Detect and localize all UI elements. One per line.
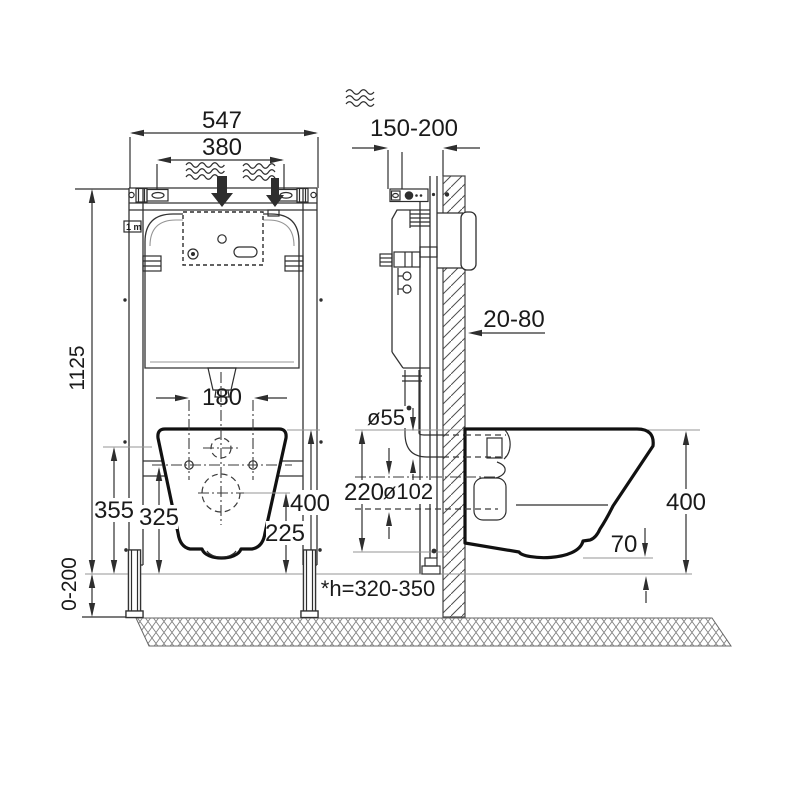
inspection-panel xyxy=(183,212,263,265)
cistern-clip-right xyxy=(285,256,303,271)
dimension-bowl-top-height-side: 400 xyxy=(666,431,706,574)
dim-bolt-height: 325 xyxy=(139,504,179,531)
cistern-clip-left xyxy=(143,256,161,271)
dimension-frame-depth: 150-200 xyxy=(352,115,480,151)
flush-plate-recess xyxy=(437,212,476,270)
installation-diagram-page: 1 m xyxy=(0,0,800,800)
dim-overall-width: 547 xyxy=(202,107,242,134)
dim-drain-height: 225 xyxy=(265,520,305,547)
dimension-bolt-spacing: 180 xyxy=(156,384,287,411)
dimension-wall-finish-range: 20-80 xyxy=(468,306,545,336)
dimension-leg-adjustment: 0-200 xyxy=(58,557,136,617)
meter-mark-label: 1 m xyxy=(126,222,142,232)
dim-bowl-bottom-clearance: 70 xyxy=(611,531,638,558)
dim-drain-diameter: ø102 xyxy=(383,479,433,504)
dimension-flush-pipe-diameter: ø55 xyxy=(366,405,416,484)
dim-pipe-span: 220 xyxy=(344,479,384,506)
dim-flush-pipe-diameter: ø55 xyxy=(367,405,405,430)
dim-flush-inlet-height: 355 xyxy=(94,497,134,524)
meter-mark: 1 m xyxy=(124,221,142,232)
dim-bowl-top-height-side: 400 xyxy=(666,489,706,516)
floor xyxy=(85,558,731,646)
dim-top-mount-width: 380 xyxy=(202,134,242,161)
note-drain-rough-in: *h=320-350 xyxy=(321,576,435,601)
side-top-bracket xyxy=(390,189,449,202)
dimension-pipe-span: 220 xyxy=(344,430,384,552)
dim-bolt-spacing: 180 xyxy=(202,384,242,411)
drain-rough-in-note: *h=320-350 xyxy=(321,576,435,601)
dim-frame-depth: 150-200 xyxy=(370,115,458,142)
toilet-frame-installation-drawing: 1 m xyxy=(0,0,800,800)
dimension-drain-diameter: ø102 xyxy=(383,448,433,539)
dim-wall-finish-range: 20-80 xyxy=(483,306,544,333)
side-frame-foot xyxy=(422,558,440,574)
cistern-side xyxy=(380,210,430,368)
dimension-frame-height: 1125 xyxy=(66,189,95,574)
cistern-front xyxy=(145,210,299,397)
dim-frame-height: 1125 xyxy=(66,345,89,390)
top-bracket-left xyxy=(129,189,168,203)
dim-leg-adjustment: 0-200 xyxy=(58,557,81,611)
dim-bowl-top-height-front: 400 xyxy=(290,490,330,517)
